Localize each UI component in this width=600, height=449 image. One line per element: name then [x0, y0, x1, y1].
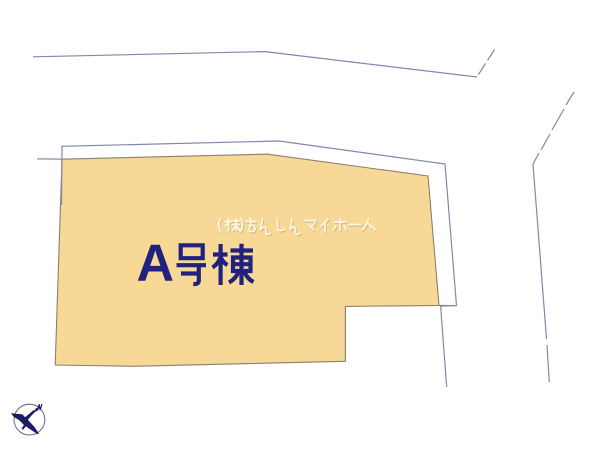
svg-text:A: A	[137, 235, 175, 293]
